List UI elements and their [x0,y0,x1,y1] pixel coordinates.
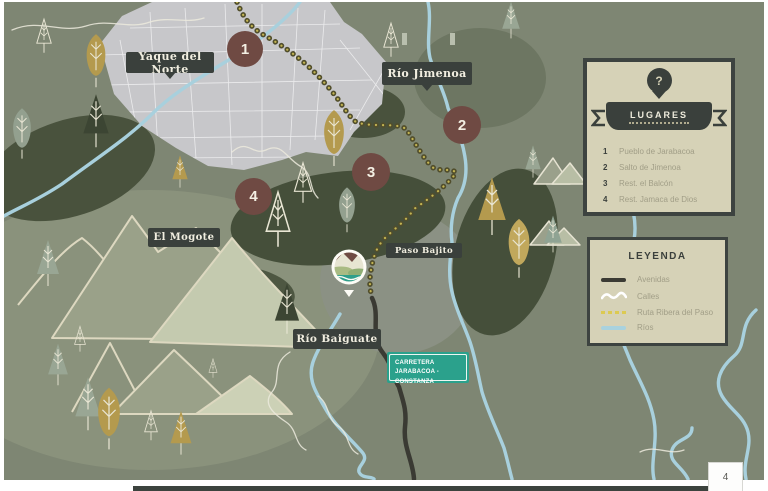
list-item: 3 Rest. el Balcón [587,175,731,191]
legend-item: Calles [590,287,725,304]
lugares-panel: ? LUGARES 1 Pueblo de Jarabacoa [583,58,735,216]
label-text: Río Baiguate [296,333,377,345]
sign-line-1: CARRETERA [395,359,466,368]
label-text: Yaque del Norte [126,50,214,76]
page-margin [764,0,768,491]
ribbon-dotted-line [629,122,689,124]
rios-line-icon [601,326,628,330]
avenidas-line-icon [601,278,628,282]
list-item: 4 Rest. Jamaca de Dios [587,192,731,208]
legend-item: Avenidas [590,272,725,287]
label-text: El Mogote [154,232,215,243]
sign-line-2: JARABACOA - CONSTANZA [395,368,466,387]
sign-post [402,33,407,45]
legend-item: Ruta Ribera del Paso [590,305,725,320]
label-paso-bajito: Paso Bajito [386,243,462,258]
map-page: Yaque del Norte Río Jimenoa El Mogote Pa… [0,0,768,491]
list-item: 1 Pueblo de Jarabacoa [587,143,731,159]
page-margin-bottom [0,480,768,491]
legend-item: Ríos [590,320,725,335]
leyenda-title: LEYENDA [590,251,725,262]
carretera-road-sign: CARRETERA JARABACOA - CONSTANZA [387,352,469,383]
lugares-title: LUGARES [630,110,688,120]
ribbon-tail-left-icon [591,109,606,127]
sign-post [450,33,455,45]
label-rio-baiguate: Río Baiguate [293,329,381,349]
marker-4: 4 [235,178,272,215]
label-text: Río Jimenoa [387,67,466,80]
lugares-list: 1 Pueblo de Jarabacoa 2 Salto de Jimenoa… [587,143,731,208]
next-page-edge [133,486,741,491]
label-el-mogote: El Mogote [148,228,220,247]
page-number-badge: 4 [708,462,743,491]
ruta-dashes-icon [601,311,628,314]
leyenda-panel: LEYENDA Avenidas Calles Ruta Ribera del … [587,237,728,346]
label-text: Paso Bajito [395,246,453,256]
marker-1: 1 [227,31,263,67]
marker-3: 3 [352,153,390,191]
list-item: 2 Salto de Jimenoa [587,159,731,175]
lugares-ribbon: LUGARES [587,102,731,134]
calles-wave-icon [601,291,628,302]
leyenda-list: Avenidas Calles Ruta Ribera del Paso Río… [590,272,725,336]
label-yaque-del-norte: Yaque del Norte [126,52,214,73]
illustrated-map: Yaque del Norte Río Jimenoa El Mogote Pa… [4,2,764,480]
label-rio-jimenoa: Río Jimenoa [382,62,472,85]
marker-2: 2 [443,106,481,144]
ribbon-tail-right-icon [712,109,727,127]
question-pin-icon: ? [647,68,672,93]
